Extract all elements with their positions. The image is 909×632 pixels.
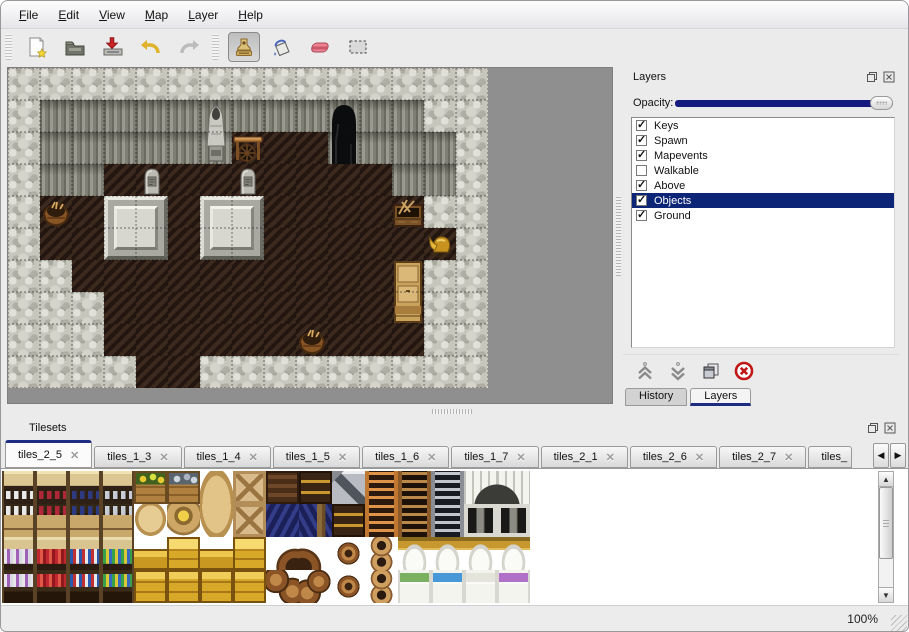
map-tile[interactable] [264,164,296,196]
map-tile[interactable] [232,356,264,388]
map-tile[interactable] [8,324,40,356]
map-tile[interactable] [264,196,296,228]
opacity-slider[interactable] [675,95,893,111]
tileset-tile[interactable] [299,471,332,504]
map-tile[interactable] [168,356,200,388]
layer-row-mapevents[interactable]: ✓Mapevents [632,148,894,163]
tileset-tab-tiles_1_3[interactable]: tiles_1_3✕ [94,446,181,468]
map-tile[interactable] [456,228,488,260]
tileset-tile[interactable] [332,504,365,537]
map-tile[interactable] [424,260,456,292]
map-tile[interactable] [392,164,424,196]
map-tile[interactable] [168,324,200,356]
map-tile[interactable] [168,68,200,100]
tab-label: tiles_1_3 [107,451,151,463]
tilesets-panel-header: Tilesets [1,417,908,439]
map-tile[interactable] [296,356,328,388]
map-tile[interactable] [72,68,104,100]
tileset-tile[interactable] [200,504,233,537]
tileset-tile[interactable] [497,504,530,537]
map-tile[interactable] [200,324,232,356]
opacity-label: Opacity: [623,97,675,109]
map-tile[interactable] [424,196,456,228]
tileset-tile[interactable] [266,504,299,537]
move-down-icon [668,361,688,381]
map-tile[interactable] [136,324,168,356]
fill-tool-button[interactable] [266,32,298,62]
map-object-gravestone[interactable] [136,164,168,196]
layer-row-above[interactable]: ✓Above [632,178,894,193]
layer-name: Ground [654,210,691,222]
tileset-tile[interactable] [2,570,35,603]
map-tile[interactable] [40,324,72,356]
scroll-tabs-right-button[interactable]: ▶ [890,443,906,468]
layer-row-spawn[interactable]: ✓Spawn [632,133,894,148]
undo-icon [139,35,163,59]
layer-visibility-checkbox[interactable]: ✓ [636,180,647,191]
tileset-tile[interactable] [365,537,398,570]
map-tile[interactable] [168,164,200,196]
map-tile[interactable] [456,292,488,324]
map-tile[interactable] [104,356,136,388]
close-tab-icon[interactable]: ✕ [249,451,258,464]
tileset-tile[interactable] [431,537,464,570]
map-tile[interactable] [392,228,424,260]
map-tile[interactable] [8,132,40,164]
map-tile[interactable] [40,292,72,324]
map-tile[interactable] [424,132,456,164]
map-tile[interactable] [40,68,72,100]
map-tile[interactable] [8,196,40,228]
open-button[interactable] [59,32,91,62]
tileset-tile[interactable] [233,537,266,570]
map-tile[interactable] [296,100,328,132]
tileset-tile[interactable] [200,537,233,570]
map-tile[interactable] [168,228,200,260]
map-tile[interactable] [264,68,296,100]
tileset-tile[interactable] [68,570,101,603]
map-tile[interactable] [40,164,72,196]
float-panel-icon[interactable] [866,71,878,83]
map-tile[interactable] [8,292,40,324]
tileset-tile[interactable] [200,471,233,504]
scroll-tabs-left-button[interactable]: ◀ [873,443,889,468]
tileset-tile[interactable] [431,570,464,603]
tileset-tile[interactable] [299,570,332,603]
tileset-tile[interactable] [464,537,497,570]
tileset-tile[interactable] [2,471,35,504]
map-tile[interactable] [200,68,232,100]
scroll-down-button[interactable]: ▼ [879,587,893,602]
scrollbar-thumb[interactable] [879,487,893,559]
map-tile[interactable] [328,324,360,356]
map-tile[interactable] [136,132,168,164]
tileset-tile[interactable] [167,570,200,603]
map-object-table[interactable] [232,132,264,164]
tileset-tile[interactable] [233,504,266,537]
tileset-tile[interactable] [497,471,530,504]
close-tab-icon[interactable]: ✕ [159,451,168,464]
map-tile[interactable] [360,164,392,196]
tileset-tab-tiles_[interactable]: tiles_ [808,446,852,468]
menu-map[interactable]: Map [135,5,178,25]
close-tab-icon[interactable]: ✕ [606,451,615,464]
dock-tab-layers[interactable]: Layers [690,388,751,406]
map-tile[interactable] [424,324,456,356]
layer-name: Mapevents [654,150,708,162]
map-tile[interactable] [360,196,392,228]
tileset-tile[interactable] [266,471,299,504]
tileset-tile[interactable] [398,504,431,537]
new-file-button[interactable] [21,32,53,62]
tileset-tile[interactable] [299,537,332,570]
vertical-splitter[interactable] [614,67,622,404]
map-tile[interactable] [72,164,104,196]
map-tile[interactable] [72,132,104,164]
map-tile[interactable] [424,292,456,324]
map-object-basket[interactable] [40,196,72,228]
tileset-tile[interactable] [233,471,266,504]
map-object-platform[interactable] [104,196,168,260]
map-tile[interactable] [264,100,296,132]
tileset-tile[interactable] [398,471,431,504]
map-tile[interactable] [424,356,456,388]
tileset-tile[interactable] [332,570,365,603]
tileset-tile[interactable] [365,570,398,603]
tileset-tile[interactable] [266,570,299,603]
map-tile[interactable] [104,260,136,292]
layer-visibility-checkbox[interactable]: ✓ [636,195,647,206]
layer-visibility-checkbox[interactable]: ✓ [636,210,647,221]
map-tile[interactable] [296,196,328,228]
map-tile[interactable] [264,292,296,324]
map-tile[interactable] [8,68,40,100]
map-tile[interactable] [40,228,72,260]
duplicate-layer-button[interactable] [699,359,723,383]
select-tool-button[interactable] [342,32,374,62]
float-panel-icon[interactable] [867,422,879,434]
map-tile[interactable] [40,132,72,164]
tileset-tile[interactable] [365,471,398,504]
map-tile[interactable] [392,132,424,164]
tileset-tile[interactable] [398,570,431,603]
opacity-slider-track[interactable] [675,100,893,107]
layer-visibility-checkbox[interactable] [636,165,647,176]
tileset-tile[interactable] [299,504,332,537]
tileset-tile[interactable] [134,570,167,603]
tab-label: tiles_ [821,451,847,463]
tileset-tile[interactable] [365,504,398,537]
map-tile[interactable] [456,100,488,132]
map-tile[interactable] [392,356,424,388]
map-tile[interactable] [456,324,488,356]
map-tile[interactable] [232,68,264,100]
close-tab-icon[interactable]: ✕ [516,451,525,464]
tileset-tile[interactable] [464,570,497,603]
map-object-cave[interactable] [328,100,360,164]
resize-grip[interactable] [891,615,907,631]
layer-visibility-checkbox[interactable]: ✓ [636,150,647,161]
tileset-tab-tiles_1_7[interactable]: tiles_1_7✕ [451,446,538,468]
map-tile[interactable] [296,164,328,196]
map-tile[interactable] [72,100,104,132]
map-tile[interactable] [360,292,392,324]
map-tile[interactable] [360,260,392,292]
map-tile[interactable] [264,228,296,260]
tileset-tile[interactable] [101,570,134,603]
close-panel-icon[interactable] [883,71,895,83]
tileset-tile[interactable] [233,570,266,603]
map-tile[interactable] [104,292,136,324]
map-tile[interactable] [200,164,232,196]
tileset-tab-tiles_2_7[interactable]: tiles_2_7✕ [719,446,806,468]
map-tile[interactable] [456,196,488,228]
map-tile[interactable] [456,68,488,100]
delete-layer-button[interactable] [732,359,756,383]
toolbar-drag-handle[interactable] [5,34,12,60]
tileset-tile[interactable] [464,471,497,504]
map-tile[interactable] [232,260,264,292]
map-tile[interactable] [296,292,328,324]
map-tile[interactable] [8,356,40,388]
map-tile[interactable] [104,164,136,196]
layer-row-walkable[interactable]: Walkable [632,163,894,178]
map-tile[interactable] [264,356,296,388]
map-tile[interactable] [328,260,360,292]
layer-list[interactable]: ✓Keys✓Spawn✓MapeventsWalkable✓Above✓Obje… [631,117,895,348]
map-tile[interactable] [136,100,168,132]
map-canvas[interactable] [8,68,488,388]
map-object-cabinet[interactable] [392,260,424,324]
tileset-tab-tiles_2_6[interactable]: tiles_2_6✕ [630,446,717,468]
layer-visibility-checkbox[interactable]: ✓ [636,135,647,146]
stamp-tool-icon [232,35,256,59]
map-tile[interactable] [136,356,168,388]
tileset-scrollbar[interactable]: ▲ ▼ [878,471,894,603]
tileset-tile[interactable] [101,537,134,570]
map-tile[interactable] [328,164,360,196]
map-tile[interactable] [72,228,104,260]
tileset-tile[interactable] [35,471,68,504]
opacity-slider-handle[interactable] [870,96,893,110]
scroll-up-button[interactable]: ▲ [879,472,893,487]
menu-file[interactable]: File [9,5,48,25]
menu-edit[interactable]: Edit [48,5,89,25]
map-tile[interactable] [40,100,72,132]
map-tile[interactable] [104,132,136,164]
map-tile[interactable] [168,196,200,228]
menu-layer[interactable]: Layer [178,5,228,25]
redo-button[interactable] [173,32,205,62]
close-tab-icon[interactable]: ✕ [784,451,793,464]
close-tab-icon[interactable]: ✕ [695,451,704,464]
map-tile[interactable] [424,68,456,100]
toolbar-drag-handle[interactable] [212,34,219,60]
layer-name: Spawn [654,135,688,147]
tileset-grid[interactable] [2,471,531,603]
tileset-tile[interactable] [134,504,167,537]
map-tile[interactable] [328,228,360,260]
tileset-tile[interactable] [2,537,35,570]
layers-panel-title: Layers [623,71,866,83]
map-tile[interactable] [232,292,264,324]
menu-view[interactable]: View [89,5,135,25]
layer-row-ground[interactable]: ✓Ground [632,208,894,223]
map-tile[interactable] [232,100,264,132]
map-tile[interactable] [40,260,72,292]
map-tile[interactable] [200,292,232,324]
map-tile[interactable] [328,68,360,100]
tileset-tile[interactable] [134,537,167,570]
move-layer-up-button[interactable] [633,359,657,383]
tileset-tile[interactable] [431,504,464,537]
menu-help[interactable]: Help [228,5,273,25]
tileset-tile[interactable] [200,570,233,603]
map-tile[interactable] [296,68,328,100]
layer-row-objects[interactable]: ✓Objects [632,193,894,208]
dock-tab-history[interactable]: History [625,388,687,406]
stamp-tool-button[interactable] [228,32,260,62]
map-object-gravestone[interactable] [232,164,264,196]
layer-name: Keys [654,120,678,132]
map-tile[interactable] [328,196,360,228]
map-tile[interactable] [168,100,200,132]
map-tile[interactable] [8,260,40,292]
layer-row-keys[interactable]: ✓Keys [632,118,894,133]
map-tile[interactable] [8,164,40,196]
map-tile[interactable] [424,100,456,132]
map-tile[interactable] [200,260,232,292]
map-tile[interactable] [360,132,392,164]
tileset-tile[interactable] [35,504,68,537]
tileset-tile[interactable] [497,570,530,603]
tileset-tab-tiles_1_6[interactable]: tiles_1_6✕ [362,446,449,468]
map-tile[interactable] [136,260,168,292]
map-tile[interactable] [72,356,104,388]
map-object-toolcrate[interactable] [392,196,424,228]
map-tile[interactable] [360,356,392,388]
map-tile[interactable] [360,228,392,260]
tileset-tab-tiles_2_5[interactable]: tiles_2_5✕ [5,440,92,468]
tileset-tile[interactable] [464,504,497,537]
map-tile[interactable] [72,196,104,228]
map-object-basket[interactable] [296,324,328,356]
tileset-tile[interactable] [266,537,299,570]
map-tile[interactable] [456,132,488,164]
tileset-tile[interactable] [68,537,101,570]
map-object-helmet[interactable] [424,228,456,260]
eraser-tool-icon [308,35,332,59]
tileset-tile[interactable] [68,471,101,504]
horizontal-splitter[interactable] [1,405,908,417]
tileset-tab-tiles_2_1[interactable]: tiles_2_1✕ [541,446,628,468]
map-tile[interactable] [72,260,104,292]
map-tile[interactable] [168,260,200,292]
tileset-tile[interactable] [497,537,530,570]
map-tile[interactable] [360,100,392,132]
tileset-tile[interactable] [332,537,365,570]
map-tile[interactable] [168,132,200,164]
tileset-tile[interactable] [332,471,365,504]
tileset-tile[interactable] [68,504,101,537]
tileset-tile[interactable] [134,471,167,504]
map-tile[interactable] [424,164,456,196]
map-tile[interactable] [264,132,296,164]
tileset-tile[interactable] [167,471,200,504]
map-tile[interactable] [168,292,200,324]
map-viewport[interactable] [7,67,613,404]
close-tab-icon[interactable]: ✕ [70,449,79,462]
map-tile[interactable] [456,164,488,196]
map-tile[interactable] [456,356,488,388]
close-tab-icon[interactable]: ✕ [427,451,436,464]
map-tile[interactable] [360,68,392,100]
map-tile[interactable] [456,260,488,292]
map-tile[interactable] [200,356,232,388]
tileset-tile[interactable] [2,504,35,537]
map-tile[interactable] [72,324,104,356]
tab-label: tiles_2_5 [18,449,62,461]
close-tab-icon[interactable]: ✕ [338,451,347,464]
map-tile[interactable] [104,100,136,132]
tilesets-panel: Tilesets tiles_2_5✕tiles_1_3✕tiles_1_4✕t… [1,417,908,605]
map-tile[interactable] [264,324,296,356]
tileset-tile[interactable] [398,537,431,570]
move-layer-down-button[interactable] [666,359,690,383]
map-tile[interactable] [392,324,424,356]
splitter-grip [616,196,621,276]
layer-visibility-checkbox[interactable]: ✓ [636,120,647,131]
map-tile[interactable] [72,292,104,324]
close-panel-icon[interactable] [884,422,896,434]
map-object-statue[interactable] [200,100,232,164]
map-tile[interactable] [296,228,328,260]
tileset-tile[interactable] [167,537,200,570]
map-tile[interactable] [40,356,72,388]
map-tile[interactable] [104,324,136,356]
map-tile[interactable] [264,260,296,292]
map-tile[interactable] [328,292,360,324]
tileset-tile[interactable] [167,504,200,537]
undo-button[interactable] [135,32,167,62]
map-tile[interactable] [392,100,424,132]
tileset-tile[interactable] [35,537,68,570]
map-tile[interactable] [104,68,136,100]
tileset-tile[interactable] [35,570,68,603]
map-tile[interactable] [8,228,40,260]
main-toolbar [1,29,908,64]
layer-name: Walkable [654,165,699,177]
map-tile[interactable] [296,132,328,164]
tileset-tile[interactable] [101,504,134,537]
map-tile[interactable] [136,68,168,100]
map-tile[interactable] [232,324,264,356]
map-tile[interactable] [360,324,392,356]
map-tile[interactable] [8,100,40,132]
eraser-tool-button[interactable] [304,32,336,62]
save-button[interactable] [97,32,129,62]
tileset-tab-tiles_1_5[interactable]: tiles_1_5✕ [273,446,360,468]
tileset-tab-tiles_1_4[interactable]: tiles_1_4✕ [184,446,271,468]
map-tile[interactable] [136,292,168,324]
map-tile[interactable] [392,68,424,100]
tileset-tile[interactable] [431,471,464,504]
map-tile[interactable] [296,260,328,292]
map-tile[interactable] [328,356,360,388]
tileset-tile[interactable] [101,471,134,504]
tab-scroll-buttons: ◀ ▶ [872,443,906,468]
map-object-platform[interactable] [200,196,264,260]
